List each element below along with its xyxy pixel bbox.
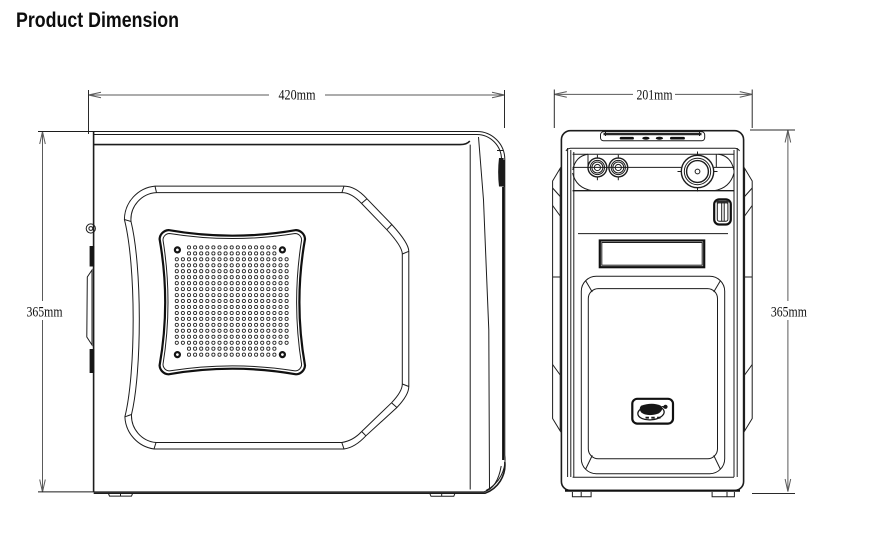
svg-text:Product Dimension: Product Dimension [16, 9, 179, 32]
svg-text:365mm: 365mm [27, 305, 64, 321]
svg-text:201mm: 201mm [637, 88, 674, 104]
svg-text:365mm: 365mm [771, 305, 808, 321]
svg-text:420mm: 420mm [279, 88, 317, 104]
